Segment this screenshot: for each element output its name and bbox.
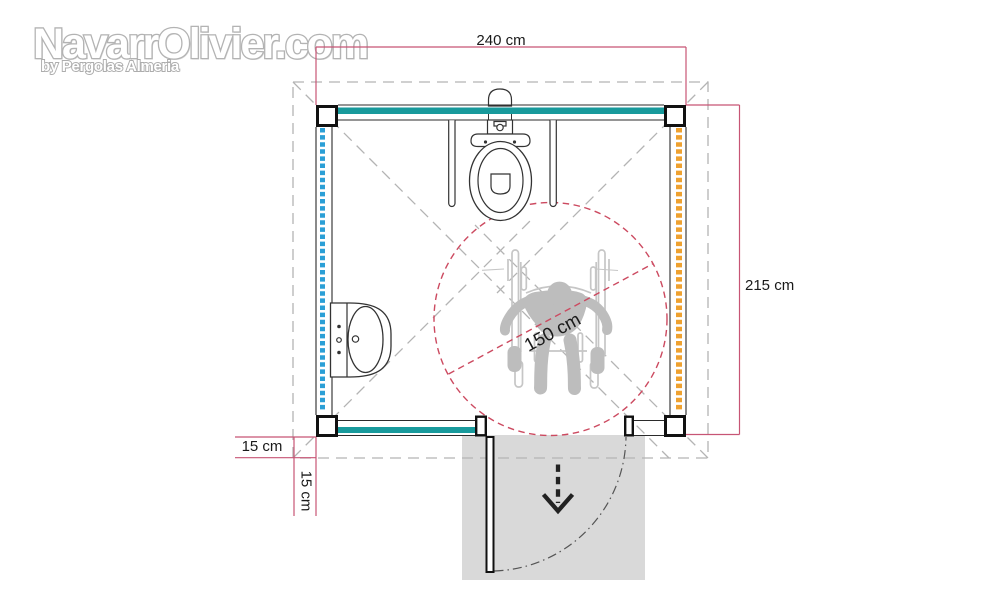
svg-text:15 cm: 15 cm xyxy=(242,438,283,455)
svg-text:215 cm: 215 cm xyxy=(745,277,794,294)
svg-text:15 cm: 15 cm xyxy=(298,471,315,512)
svg-text:240 cm: 240 cm xyxy=(476,32,525,49)
svg-text:by Pergolas Almeria: by Pergolas Almeria xyxy=(41,58,180,75)
